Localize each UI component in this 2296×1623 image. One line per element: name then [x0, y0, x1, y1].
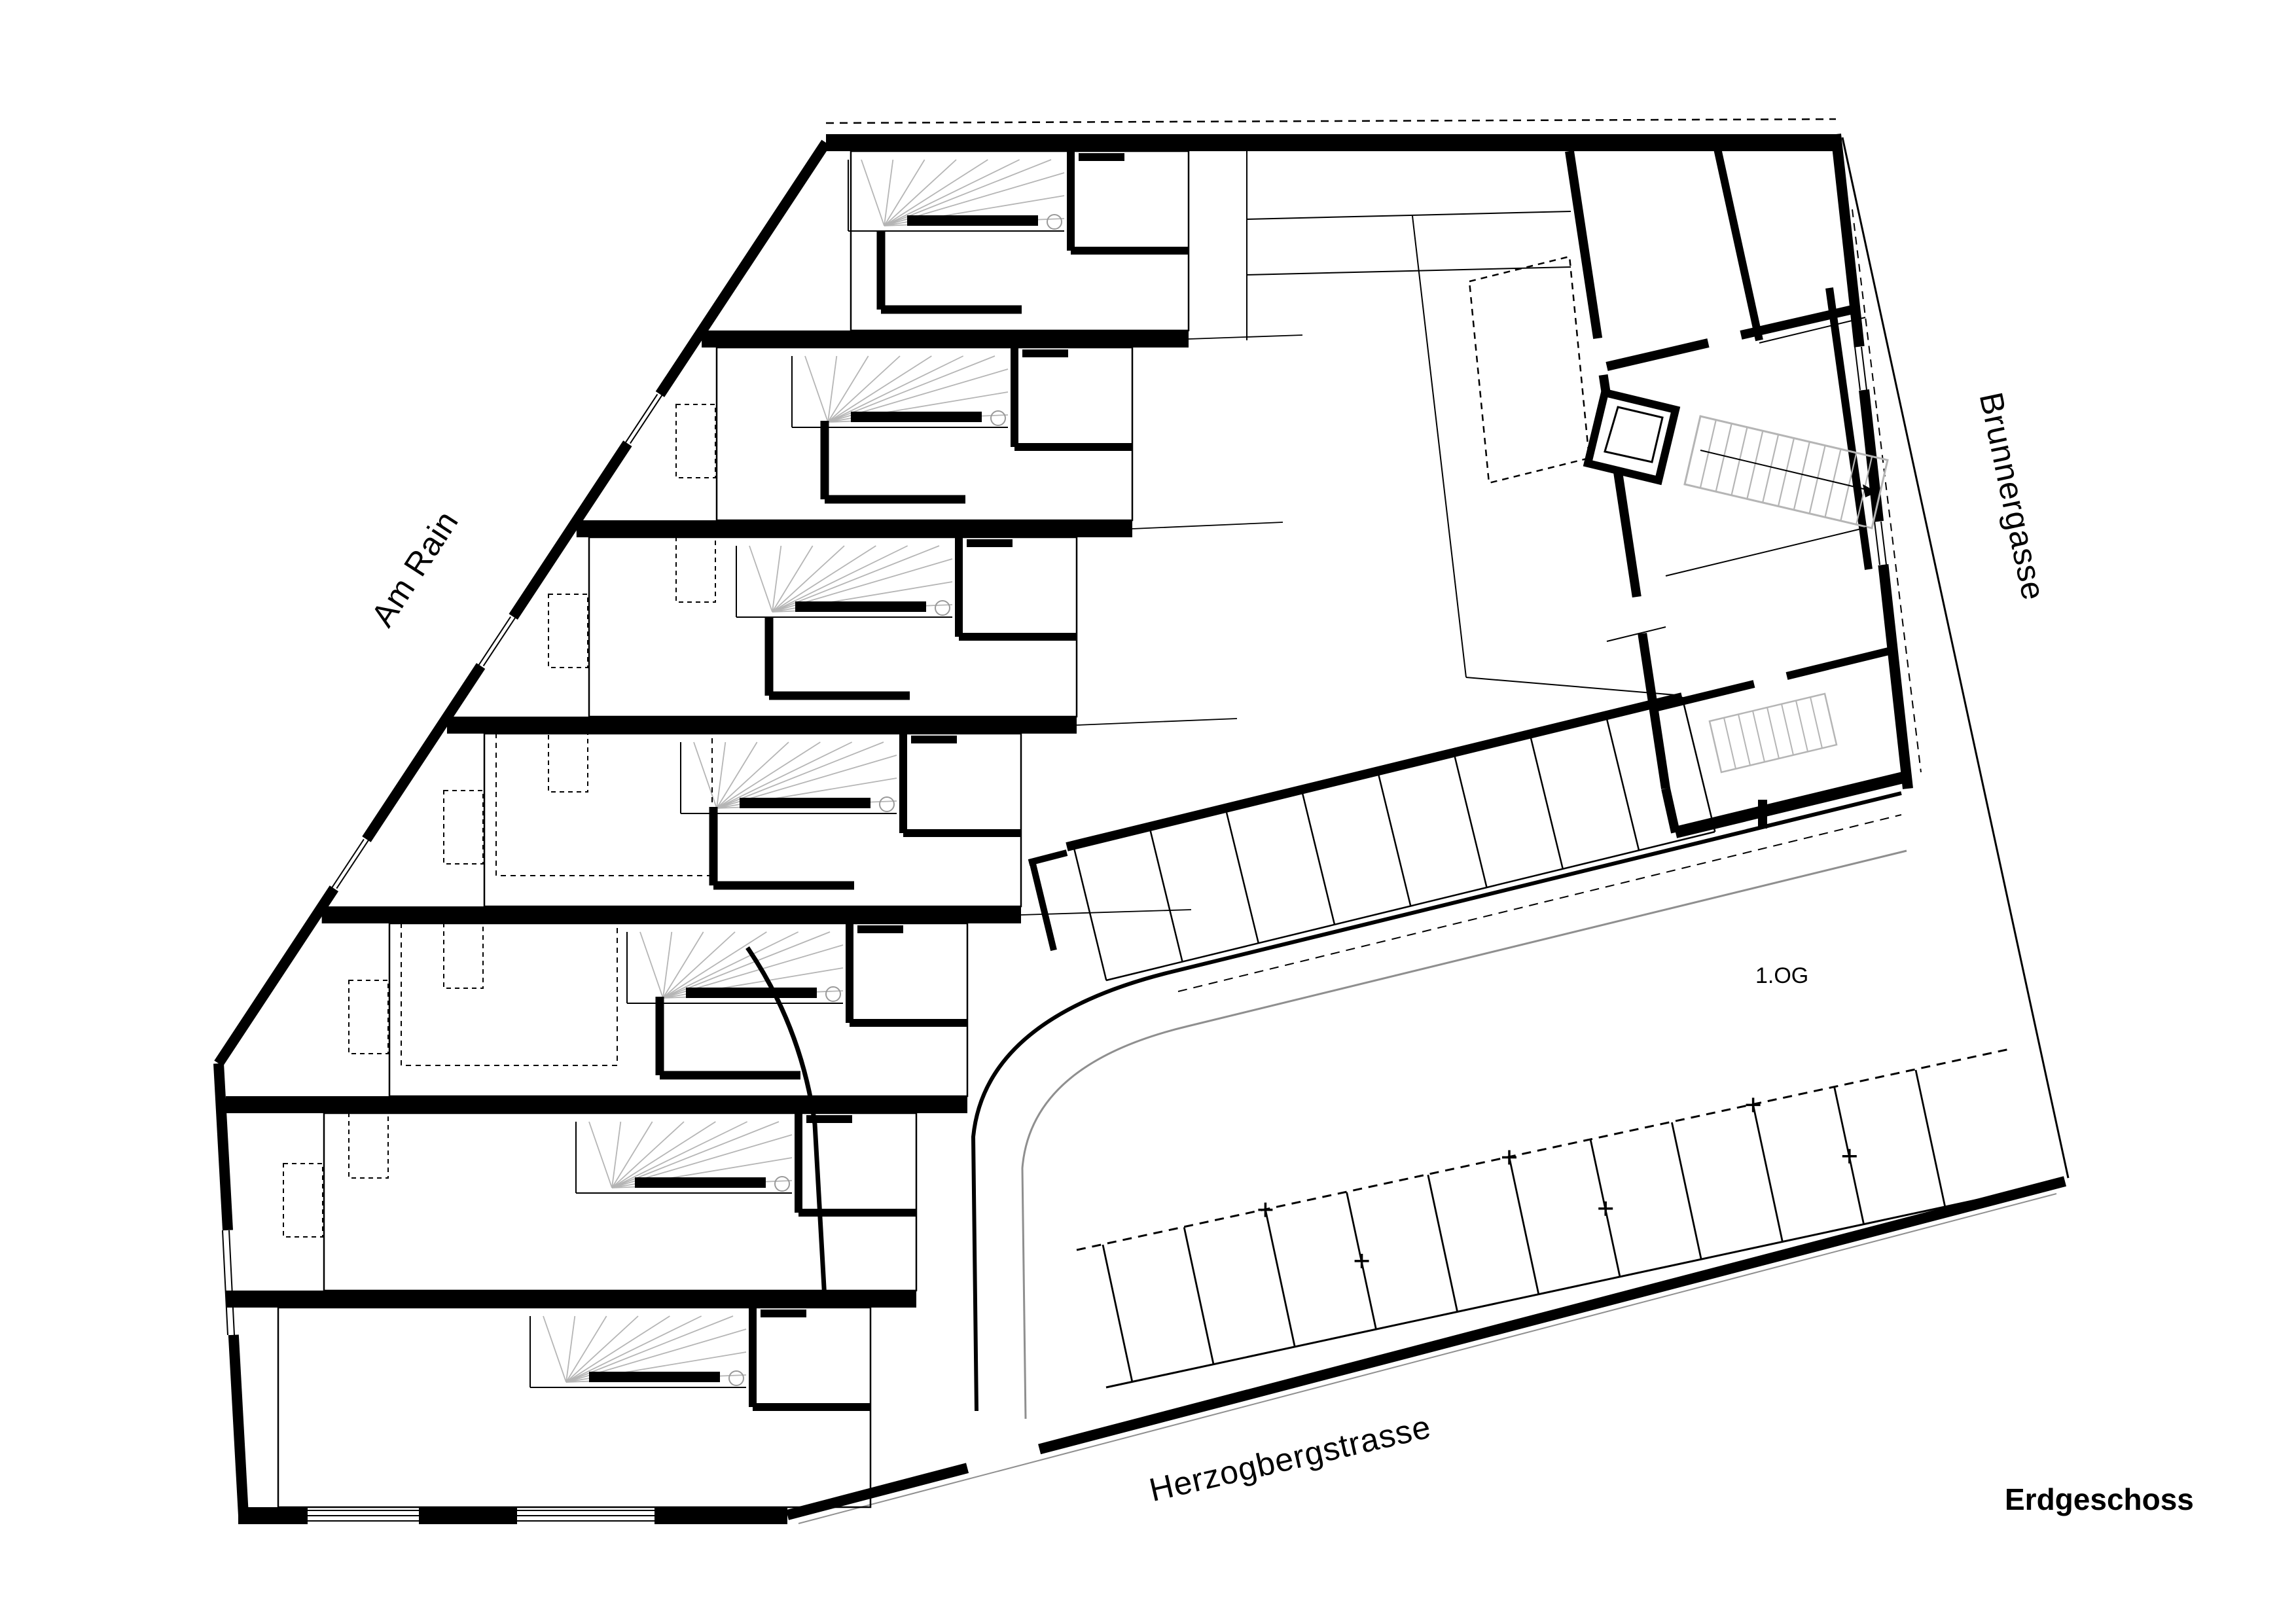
parking-area	[1029, 697, 2042, 1387]
street-label-am-rain: Am Rain	[364, 504, 465, 633]
house-unit	[676, 330, 1189, 602]
floor-title: Erdgeschoss	[2005, 1482, 2194, 1516]
house-unit	[444, 717, 1077, 988]
street-label-brunnergasse: Brunnergasse	[1973, 389, 2053, 604]
upper-floor-note: 1.OG	[1755, 963, 1808, 988]
street-label-herzogbergstrasse: Herzogbergstrasse	[1146, 1408, 1435, 1508]
house-unit	[848, 151, 1189, 330]
house-unit	[548, 520, 1132, 792]
floor-plan-drawing: Am Rain Brunnergasse Herzogbergstrasse 1…	[0, 0, 2296, 1623]
house-unit	[226, 1291, 916, 1507]
house-unit	[226, 1096, 967, 1291]
plan-sheet: Am Rain Brunnergasse Herzogbergstrasse 1…	[0, 0, 2296, 1623]
access-road	[973, 793, 1907, 1419]
